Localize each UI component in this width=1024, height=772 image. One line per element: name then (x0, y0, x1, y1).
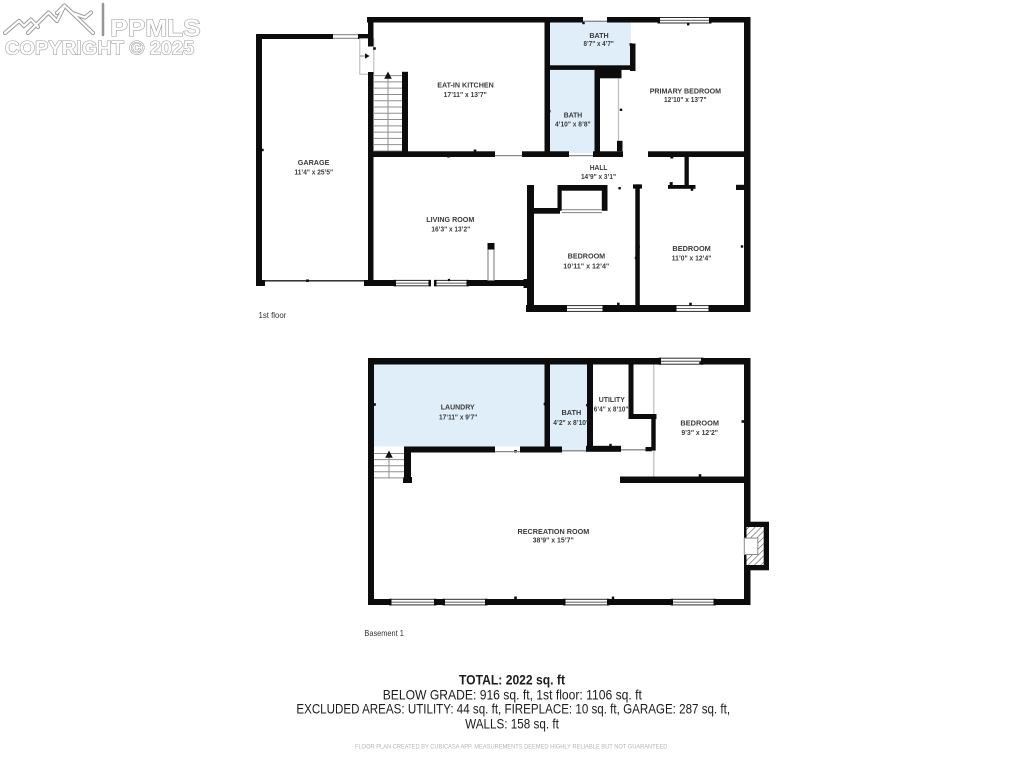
svg-text:BATH: BATH (564, 110, 583, 119)
svg-text:WALLS: 158 sq. ft: WALLS: 158 sq. ft (465, 715, 559, 731)
svg-text:LAUNDRY: LAUNDRY (441, 402, 475, 411)
svg-text:EAT-IN KITCHEN: EAT-IN KITCHEN (437, 81, 494, 90)
svg-text:4’2" x 8’10": 4’2" x 8’10" (553, 418, 589, 427)
svg-text:38’9" x 15’7": 38’9" x 15’7" (533, 536, 575, 545)
svg-text:10’11" x 12’4": 10’11" x 12’4" (563, 261, 609, 270)
svg-text:6’4" x 8’10": 6’4" x 8’10" (594, 405, 629, 414)
svg-text:UTILITY: UTILITY (599, 395, 625, 404)
svg-text:FLOOR PLAN CREATED BY CUBICASA: FLOOR PLAN CREATED BY CUBICASA APP. MEAS… (355, 743, 669, 750)
svg-text:TOTAL: 2022 sq. ft: TOTAL: 2022 sq. ft (459, 672, 565, 688)
svg-text:RECREATION ROOM: RECREATION ROOM (518, 527, 590, 536)
svg-text:11’4" x 25’5": 11’4" x 25’5" (295, 167, 334, 176)
svg-text:LIVING ROOM: LIVING ROOM (426, 215, 474, 224)
svg-text:17’11" x 13’7": 17’11" x 13’7" (444, 90, 487, 99)
svg-text:14’9" x 3’1": 14’9" x 3’1" (581, 172, 616, 181)
svg-text:EXCLUDED AREAS: UTILITY: 44 sq: EXCLUDED AREAS: UTILITY: 44 sq. ft, FIRE… (296, 700, 730, 716)
svg-text:BEDROOM: BEDROOM (568, 252, 606, 261)
svg-text:COPYRIGHT © 2025: COPYRIGHT © 2025 (5, 38, 194, 60)
svg-text:Basement 1: Basement 1 (364, 628, 404, 638)
svg-text:BEDROOM: BEDROOM (680, 418, 719, 427)
svg-text:9’3" x 12’2": 9’3" x 12’2" (681, 428, 718, 437)
svg-text:BEDROOM: BEDROOM (672, 244, 710, 253)
svg-text:BATH: BATH (562, 408, 582, 417)
svg-text:17’11" x 9’7": 17’11" x 9’7" (439, 413, 478, 422)
svg-text:GARAGE: GARAGE (298, 158, 330, 167)
svg-text:16’3" x 13’2": 16’3" x 13’2" (431, 225, 470, 234)
svg-text:11’0" x 12’4": 11’0" x 12’4" (672, 254, 712, 263)
svg-text:1st floor: 1st floor (259, 310, 287, 320)
svg-text:HALL: HALL (590, 163, 608, 172)
svg-text:4’10" x 8’8": 4’10" x 8’8" (555, 120, 591, 129)
svg-text:8’7" x 4’7": 8’7" x 4’7" (584, 39, 615, 48)
svg-text:12’10" x 13’7": 12’10" x 13’7" (664, 95, 707, 104)
